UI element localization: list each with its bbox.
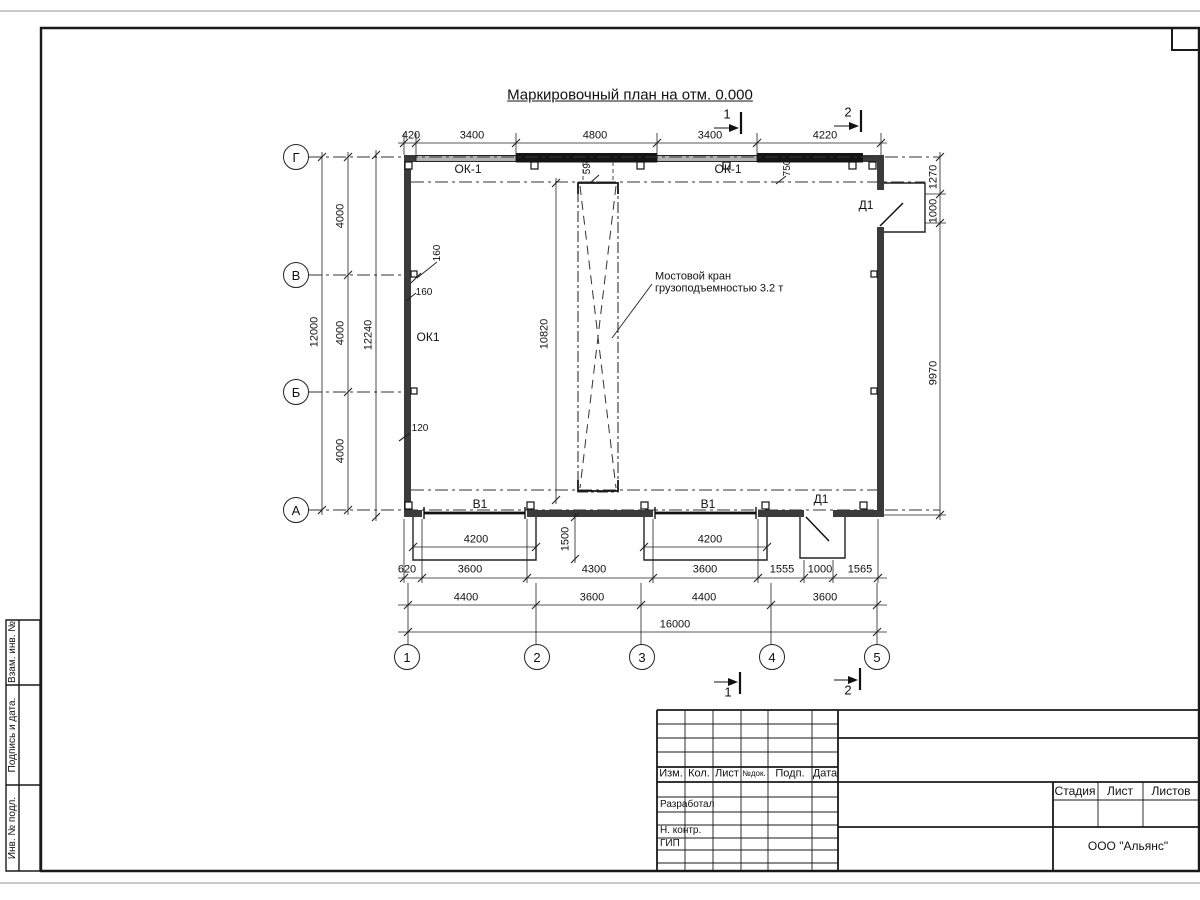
titleblock-role-nkontr: Н. контр. xyxy=(660,826,701,836)
axis-label-1: 1 xyxy=(403,650,410,665)
axis-circle-3: 3 xyxy=(629,644,655,670)
dim-bot2-4400a: 4400 xyxy=(454,593,478,604)
crane-note-line2: грузоподъемностью 3.2 т xyxy=(655,284,783,295)
titleblock-col-list: Лист xyxy=(715,769,739,780)
gate-label-v1-right: В1 xyxy=(701,498,716,510)
section-marker-bottom-2: 2 xyxy=(844,684,851,697)
dim-bot1-620: 620 xyxy=(398,565,416,576)
titleblock-col-data: Дата xyxy=(813,769,837,780)
titleblock-sheets: Листов xyxy=(1152,785,1191,797)
strip-label-podpis-data: Подпись и дата. xyxy=(8,698,18,773)
dim-bot2-3600a: 3600 xyxy=(580,593,604,604)
dim-590: 590 xyxy=(583,158,593,175)
axis-label-5: 5 xyxy=(873,650,880,665)
dim-750: 750 xyxy=(783,160,793,177)
axis-label-g: Г xyxy=(292,150,299,165)
section-marker-top-2: 2 xyxy=(844,106,851,119)
door-label-d1-bottom: Д1 xyxy=(814,493,829,505)
titleblock-role-gip: ГИП xyxy=(660,839,680,849)
dim-top-4800: 4800 xyxy=(583,131,607,142)
window-label-ok1-left: ОК-1 xyxy=(455,163,482,175)
dim-bot2-3600b: 3600 xyxy=(813,593,837,604)
dim-left-4000c: 4000 xyxy=(336,439,347,463)
dim-total-16000: 16000 xyxy=(660,620,691,631)
gate-label-v1-left: В1 xyxy=(473,498,488,510)
dim-crane-10820: 10820 xyxy=(540,319,551,350)
section-marker-top-1: 1 xyxy=(723,108,730,121)
dim-top-3400b: 3400 xyxy=(698,131,722,142)
dim-bot1-1555: 1555 xyxy=(770,565,794,576)
dim-bot1-3600b: 3600 xyxy=(693,565,717,576)
dim-160-b: 160 xyxy=(416,288,433,298)
axis-circle-v: В xyxy=(283,262,309,288)
dim-right-1270: 1270 xyxy=(929,165,940,189)
crane-note-line1: Мостовой кран xyxy=(655,272,731,283)
axis-circle-g: Г xyxy=(283,144,309,170)
dim-left-4000b: 4000 xyxy=(336,321,347,345)
door-label-d1-top: Д1 xyxy=(859,199,874,211)
dim-160-a: 160 xyxy=(433,245,443,262)
axis-circle-2: 2 xyxy=(524,644,550,670)
company-name: ООО "Альянс" xyxy=(1088,840,1168,852)
dim-top-4220: 4220 xyxy=(813,131,837,142)
dim-bot1-4300: 4300 xyxy=(582,565,606,576)
dim-right-1000: 1000 xyxy=(929,199,940,223)
dim-gate-4200b: 4200 xyxy=(698,535,722,546)
titleblock-stage: Стадия xyxy=(1055,785,1096,797)
axis-circle-b: Б xyxy=(283,379,309,405)
axis-circle-4: 4 xyxy=(759,644,785,670)
titleblock-col-ndok: №док. xyxy=(742,770,765,778)
titleblock-col-izm: Изм. xyxy=(659,769,683,780)
axis-circle-1: 1 xyxy=(394,644,420,670)
dim-right-9970: 9970 xyxy=(929,361,940,385)
titleblock-col-kol: Кол. xyxy=(688,769,710,780)
axis-label-v: В xyxy=(292,268,301,283)
section-marker-bottom-1: 1 xyxy=(724,686,731,699)
dim-120: 120 xyxy=(412,424,429,434)
dim-bot1-1565: 1565 xyxy=(848,565,872,576)
axis-label-2: 2 xyxy=(533,650,540,665)
dim-bot1-3600a: 3600 xyxy=(458,565,482,576)
plan-title: Маркировочный план на отм. 0.000 xyxy=(507,88,753,103)
strip-label-vzam-inv: Взам. инв. № xyxy=(8,621,18,683)
titleblock-sheet: Лист xyxy=(1107,785,1133,797)
axis-circle-a: А xyxy=(283,497,309,523)
dim-bot1-1000: 1000 xyxy=(808,565,832,576)
strip-label-inv-podl: Инв. № подл. xyxy=(8,797,18,859)
titleblock-role-razrabotal: Разработал xyxy=(660,800,714,810)
axis-circle-5: 5 xyxy=(864,644,890,670)
axis-label-4: 4 xyxy=(768,650,775,665)
dim-left-12000: 12000 xyxy=(310,317,321,348)
axis-label-a: А xyxy=(292,503,301,518)
dim-left-4000a: 4000 xyxy=(336,204,347,228)
window-label-ok1-right: ОК-1 xyxy=(715,163,742,175)
dim-gate-4200a: 4200 xyxy=(464,535,488,546)
dim-top-3400a: 3400 xyxy=(460,131,484,142)
dim-gate-1500: 1500 xyxy=(561,527,572,551)
wall-label-ok1: ОК1 xyxy=(417,331,440,343)
dim-top-420: 420 xyxy=(402,131,420,142)
drawing-sheet: Маркировочный план на отм. 0.000 1 2 1 2… xyxy=(0,0,1200,900)
axis-label-3: 3 xyxy=(638,650,645,665)
titleblock-col-podp: Подп. xyxy=(775,769,804,780)
dim-bot2-4400b: 4400 xyxy=(692,593,716,604)
dim-left-12240: 12240 xyxy=(364,320,375,351)
axis-label-b: Б xyxy=(292,385,301,400)
